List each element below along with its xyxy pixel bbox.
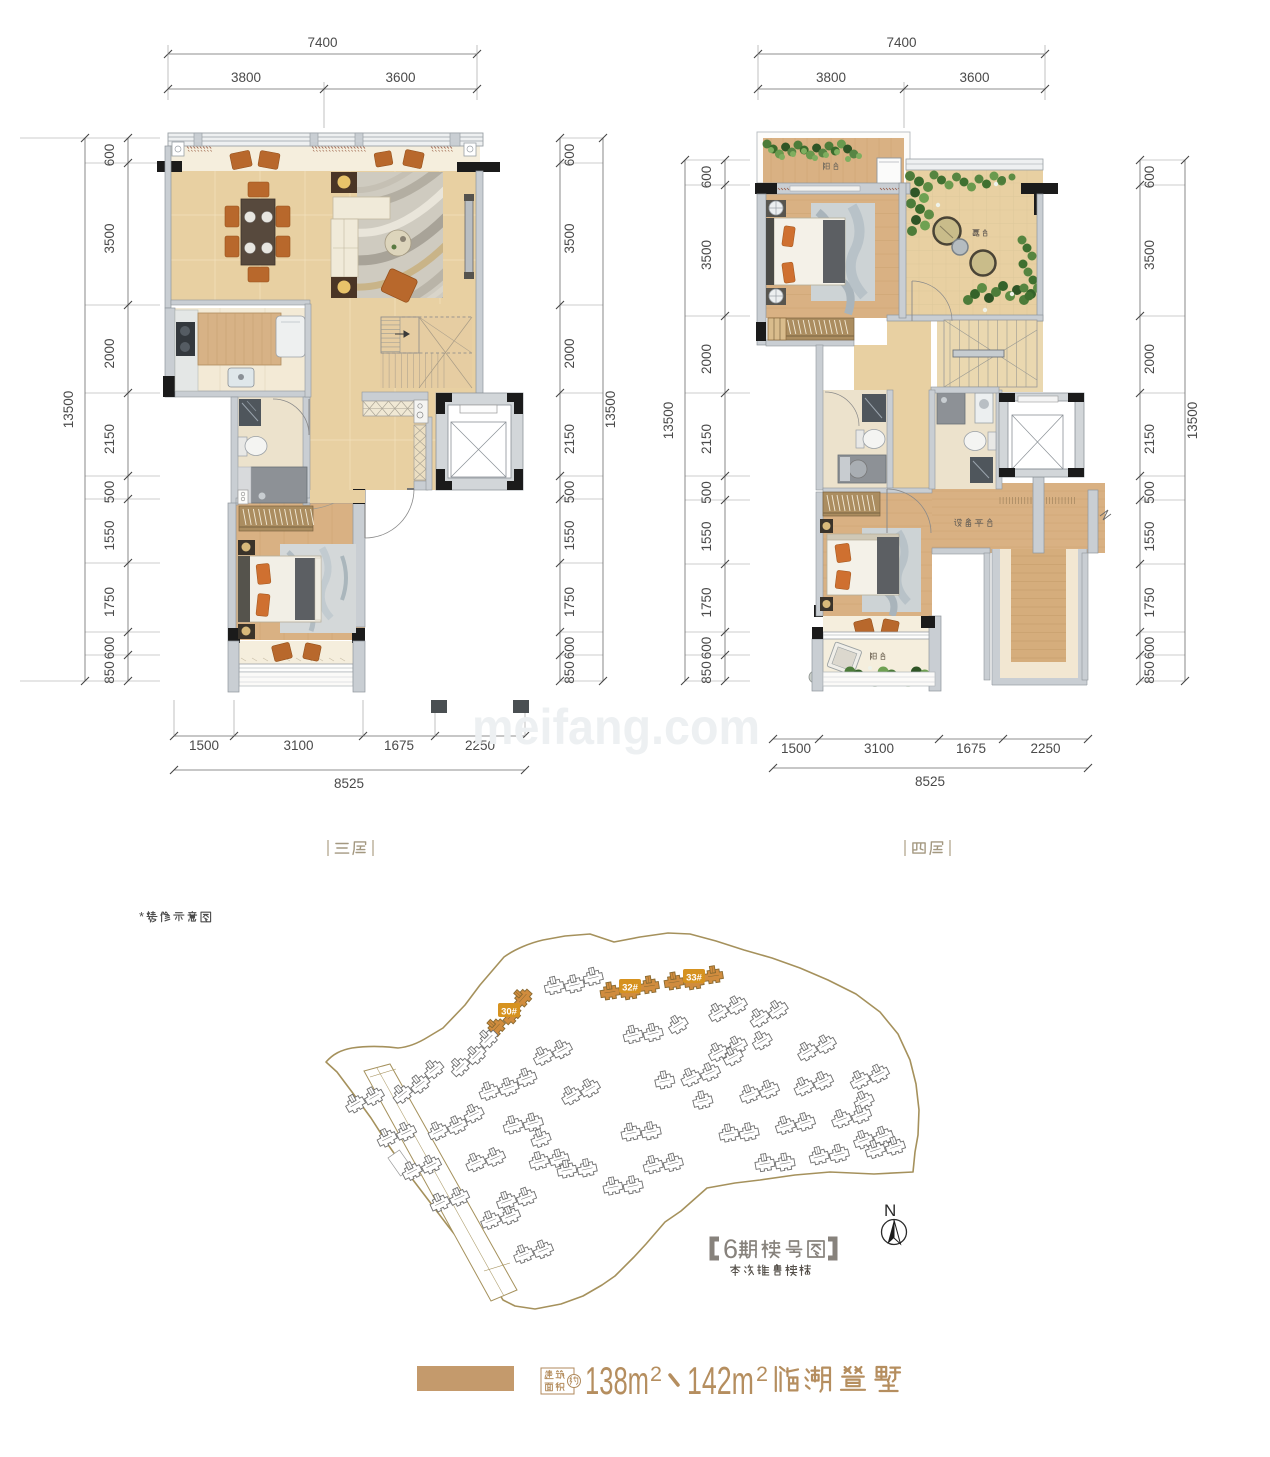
svg-text:3500: 3500 [1142, 240, 1157, 270]
svg-text:2250: 2250 [1030, 741, 1060, 756]
svg-text:13500: 13500 [61, 391, 76, 429]
svg-text:500: 500 [102, 481, 117, 504]
svg-text:2150: 2150 [699, 424, 714, 454]
svg-text:600: 600 [102, 144, 117, 167]
svg-text:600: 600 [1142, 637, 1157, 660]
svg-text:2: 2 [756, 1363, 768, 1386]
svg-text:850: 850 [699, 661, 714, 684]
svg-text:600: 600 [699, 166, 714, 189]
svg-text:3100: 3100 [864, 741, 894, 756]
svg-text:600: 600 [699, 637, 714, 660]
svg-text:3500: 3500 [102, 223, 117, 253]
svg-text:600: 600 [1142, 166, 1157, 189]
svg-text:1750: 1750 [1142, 587, 1157, 617]
svg-text:1550: 1550 [699, 521, 714, 551]
svg-text:13500: 13500 [1185, 402, 1200, 440]
svg-text:N: N [884, 1201, 896, 1220]
svg-text:33#: 33# [686, 973, 703, 984]
svg-text:2150: 2150 [1142, 424, 1157, 454]
svg-text:500: 500 [1142, 481, 1157, 504]
svg-text:138m: 138m [585, 1360, 649, 1403]
svg-text:850: 850 [562, 661, 577, 684]
svg-text:142m: 142m [687, 1360, 754, 1403]
svg-text:3800: 3800 [816, 70, 846, 85]
svg-text:7400: 7400 [886, 35, 916, 50]
svg-text:850: 850 [1142, 661, 1157, 684]
svg-text:2: 2 [650, 1363, 662, 1386]
svg-text:3600: 3600 [385, 70, 415, 85]
svg-text:3100: 3100 [283, 738, 313, 753]
svg-text:1750: 1750 [699, 587, 714, 617]
svg-text:13500: 13500 [603, 391, 618, 429]
svg-text:500: 500 [699, 481, 714, 504]
svg-text:1750: 1750 [562, 587, 577, 617]
svg-text:30#: 30# [501, 1007, 518, 1018]
svg-text:6: 6 [723, 1234, 738, 1264]
svg-text:1550: 1550 [1142, 521, 1157, 551]
svg-text:850: 850 [102, 661, 117, 684]
svg-text:1675: 1675 [384, 738, 414, 753]
svg-text:2150: 2150 [102, 424, 117, 454]
svg-text:600: 600 [102, 637, 117, 660]
svg-text:7400: 7400 [307, 35, 337, 50]
svg-text:2000: 2000 [102, 338, 117, 368]
svg-text:2000: 2000 [562, 338, 577, 368]
svg-text:600: 600 [562, 637, 577, 660]
svg-text:2000: 2000 [699, 344, 714, 374]
svg-text:600: 600 [562, 144, 577, 167]
svg-text:3500: 3500 [562, 223, 577, 253]
svg-text:1675: 1675 [956, 741, 986, 756]
svg-text:500: 500 [562, 481, 577, 504]
svg-text:8525: 8525 [915, 774, 945, 789]
svg-text:8525: 8525 [334, 776, 364, 791]
svg-text:32#: 32# [622, 983, 639, 994]
svg-text:meifang.com: meifang.com [472, 699, 760, 755]
svg-text:2000: 2000 [1142, 344, 1157, 374]
svg-text:2150: 2150 [562, 424, 577, 454]
svg-text:1550: 1550 [102, 520, 117, 550]
svg-text:3600: 3600 [959, 70, 989, 85]
svg-text:3500: 3500 [699, 240, 714, 270]
svg-text:1500: 1500 [781, 741, 811, 756]
svg-text:1500: 1500 [189, 738, 219, 753]
svg-text:3800: 3800 [231, 70, 261, 85]
svg-text:1750: 1750 [102, 587, 117, 617]
svg-text:1550: 1550 [562, 520, 577, 550]
svg-text:*: * [139, 909, 144, 924]
svg-text:13500: 13500 [661, 402, 676, 440]
